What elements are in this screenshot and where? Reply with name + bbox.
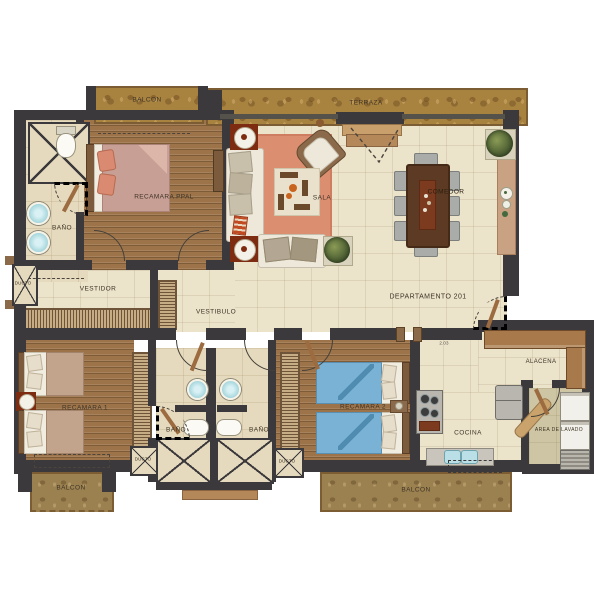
coffee-table-bowl-2 <box>286 193 292 199</box>
kitchen-door-jamb-1 <box>396 327 405 342</box>
master-bed-fold <box>138 145 167 174</box>
sala-plant <box>324 237 350 263</box>
label-recamara-2: RECAMARA 2 <box>340 404 386 411</box>
bedroom1-balcony-door-dashed <box>34 454 110 468</box>
bath1-halfwall <box>175 405 207 412</box>
label-alacena: ALACENA <box>526 359 557 365</box>
side-table-bottom-dot <box>241 246 247 252</box>
label-vestibulo: VESTIBULO <box>196 309 236 316</box>
master-pillow-2 <box>97 173 117 196</box>
bath2-toilet <box>216 419 242 436</box>
label-ducto-2: DUCTO <box>135 457 151 462</box>
fridge <box>495 385 523 420</box>
master-window-dashed <box>98 133 190 134</box>
bed2-pillow-2 <box>26 430 43 447</box>
label-departamento: DEPARTAMENTO 201 <box>389 294 466 301</box>
master-toilet <box>56 133 76 158</box>
dining-deco-2 <box>427 201 431 205</box>
wall-living-top-b <box>402 114 505 119</box>
kitchen-door-jamb-2 <box>413 327 422 342</box>
bedroom1-side-table-circle <box>19 394 35 410</box>
bed4-headboard <box>402 412 410 454</box>
stove-burner-4 <box>430 409 439 418</box>
bedroom2-lamp <box>395 402 403 410</box>
bed3-pillow-1 <box>381 364 397 383</box>
vestidor-closet-side <box>158 280 177 330</box>
vestidor-closet-band <box>18 308 154 330</box>
bed3-pillow-2 <box>381 381 397 400</box>
label-balcon-bottom-left: BALCON <box>56 485 85 492</box>
bath2-halfwall <box>217 405 247 412</box>
master-pillow-1 <box>96 149 116 172</box>
wall-balcony-tl-b <box>198 86 208 118</box>
sofa-cushion-2 <box>228 172 253 195</box>
label-ducto-3: DUCTO <box>279 459 295 464</box>
label-cocina: COCINA <box>454 430 482 437</box>
master-bath-dashed-line <box>28 278 84 279</box>
bath2-sink <box>220 379 241 400</box>
bed3-fold <box>338 364 374 400</box>
label-balcon-top-left: BALCON <box>132 97 161 104</box>
label-recamara-ppal: RECAMARA PPAL <box>134 194 194 201</box>
baths-exterior-step <box>182 490 258 500</box>
bed4-fold <box>338 414 374 450</box>
label-dimension-kitchen-door: 2.03 <box>439 341 448 346</box>
bed4-pillow-2 <box>381 431 397 449</box>
view-cone-dashed <box>343 122 405 168</box>
label-vestidor: VESTIDOR <box>80 286 116 293</box>
bed1-pillow-1 <box>26 354 43 372</box>
wall-vestidor-right <box>150 266 158 332</box>
master-sink-2 <box>27 231 50 254</box>
label-recamara-1: RECAMARA 1 <box>62 405 108 412</box>
label-sala: SALA <box>313 195 331 202</box>
bed2-blanket <box>46 410 84 454</box>
wall-mid-a <box>14 328 176 340</box>
dining-deco-3 <box>423 208 427 212</box>
stove-burner-2 <box>430 396 439 405</box>
drying-rack <box>560 450 590 470</box>
alacena-counter-side <box>566 347 586 389</box>
sofa-cushion-3 <box>228 193 252 216</box>
wall-balcony-tl-a <box>86 86 96 118</box>
stove-panel <box>419 421 440 431</box>
bedroom2-closet <box>280 352 300 460</box>
stove-burner-1 <box>420 394 430 404</box>
bath2-shower <box>216 438 274 484</box>
dining-runner <box>419 180 436 230</box>
label-terraza: TERRAZA <box>349 100 382 107</box>
wall-mid-b <box>206 328 246 340</box>
bed3-headboard <box>402 362 410 404</box>
label-balcon-bottom: BALCON <box>401 487 430 494</box>
loveseat-cushion-2 <box>290 237 318 263</box>
label-bano-ppal: BAÑO <box>52 225 72 232</box>
wall-terraza-end <box>206 90 222 116</box>
bath1-shower <box>156 438 212 484</box>
wall-balcony-bl-b <box>102 470 116 492</box>
sofa-cushion-1 <box>228 151 253 174</box>
label-area-de-lavado: AREA DE LAVADO <box>535 427 583 433</box>
credenza-bowl-1-dot <box>504 191 507 194</box>
coffee-table-stick-3 <box>278 194 284 210</box>
wall-bath-bed-b <box>76 212 84 262</box>
bed2-pillow-1 <box>26 412 43 430</box>
coffee-table-stick-4 <box>294 204 310 210</box>
wall-sconce <box>316 119 324 127</box>
floor-plan: BALCON TERRAZA RECAMARA PPAL BAÑO VESTID… <box>0 0 600 600</box>
master-console <box>213 150 224 192</box>
label-ducto-1: DUCTO <box>15 281 31 286</box>
washer-2 <box>560 421 590 450</box>
master-sink-1 <box>27 202 50 225</box>
sofa-red-pillow <box>232 215 248 236</box>
stove-burner-3 <box>420 407 430 417</box>
bed1-blanket <box>46 352 84 396</box>
credenza-bowl-2 <box>502 200 511 209</box>
coffee-table-stick-2 <box>302 180 308 196</box>
corner-plant <box>486 130 513 157</box>
wall-balcony-bl-a <box>18 470 32 492</box>
wall-mid-c <box>274 328 302 340</box>
bed4-pillow-1 <box>381 414 397 433</box>
loveseat-cushion-1 <box>263 237 292 263</box>
label-comedor: COMEDOR <box>428 189 465 196</box>
washer-1 <box>560 392 590 421</box>
wall-mid-d <box>330 328 402 340</box>
kitchen-balcony-door-dashed <box>448 460 502 473</box>
bed1-pillow-2 <box>26 372 43 390</box>
credenza-bowl-3 <box>502 211 508 217</box>
label-bano-2: BAÑO <box>249 427 269 434</box>
coffee-table-stick-1 <box>280 172 298 178</box>
fridge-divider <box>495 400 521 401</box>
wall-bath1-left-a <box>148 340 156 406</box>
label-bano-1: BAÑO <box>166 427 186 434</box>
bath1-sink <box>187 379 208 400</box>
coffee-table-bowl-1 <box>289 184 297 192</box>
side-table-top-dot <box>241 134 247 140</box>
